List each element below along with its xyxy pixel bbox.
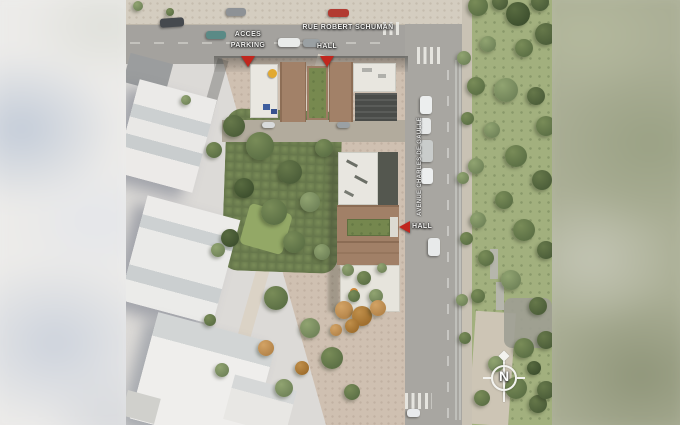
car: [428, 238, 440, 256]
access-parking-label-line2: PARKING: [222, 41, 274, 51]
car: [407, 409, 420, 417]
car: [226, 8, 246, 16]
access-parking-marker-icon: [241, 56, 255, 67]
compass-north-letter: N: [486, 368, 522, 384]
right-blur-margin: [552, 0, 680, 425]
aerial-site-plan: HALL RUE ROBERT SCHUMAN AVENUE CHARLES D…: [0, 0, 680, 425]
left-blur-fill: [0, 0, 126, 425]
site-plan-image: HALL RUE ROBERT SCHUMAN AVENUE CHARLES D…: [126, 0, 552, 425]
car: [337, 122, 350, 128]
street-top-label: RUE ROBERT SCHUMAN: [286, 23, 410, 33]
left-blur-margin: [0, 0, 126, 425]
north-compass-icon: N: [486, 358, 522, 398]
access-parking-label-line1: ACCES: [222, 30, 274, 40]
hall-north-marker-icon: [320, 56, 334, 67]
car: [278, 38, 300, 47]
car: [328, 9, 349, 17]
hall-north-label: HALL: [312, 42, 342, 52]
street-right-label: AVENUE CHARLES DE GAULLE: [417, 90, 423, 216]
car: [160, 17, 185, 28]
car: [262, 122, 275, 128]
right-blur-fill: [552, 0, 680, 425]
